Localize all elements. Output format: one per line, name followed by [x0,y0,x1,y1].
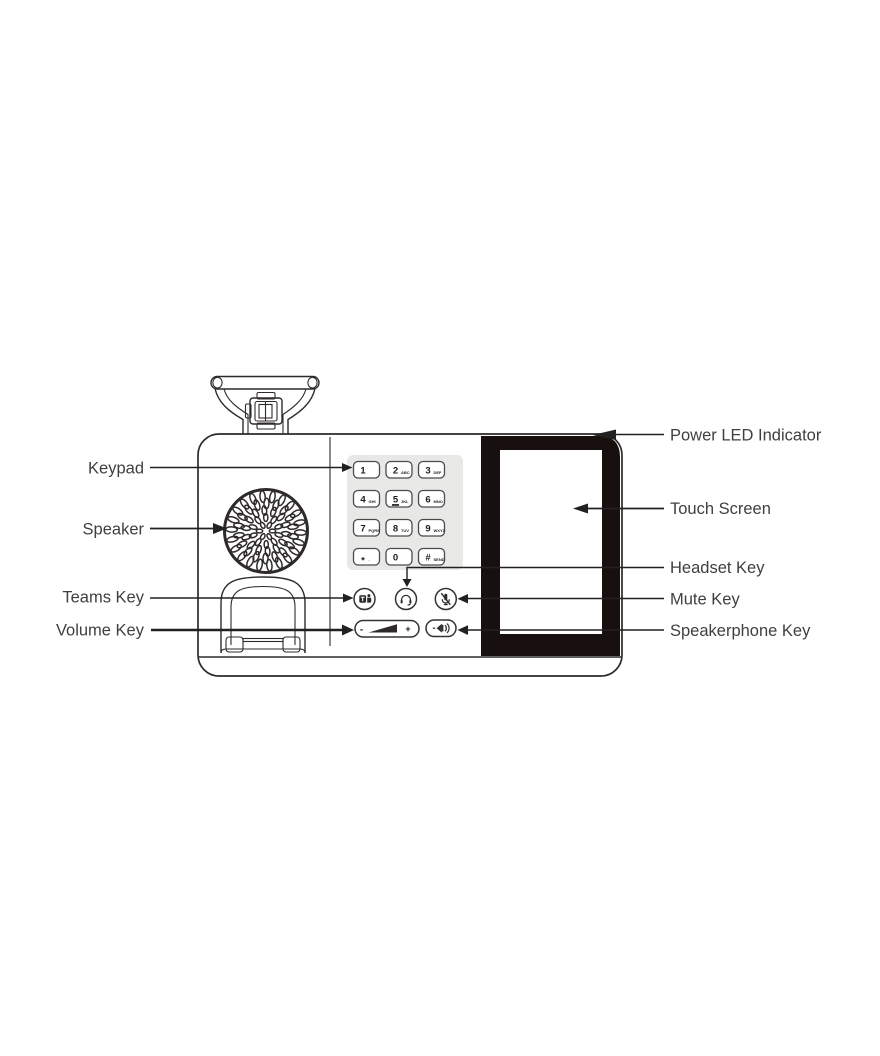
touch-screen[interactable] [481,436,620,656]
key-digit: 7 [360,523,365,534]
phone-callout-diagram: 12ABC3DEF4GHI5JKL6MNO7PQRS8TUV9WXYZ*.0#S… [0,0,880,1056]
callout-power-led-indicator: Power LED Indicator [593,427,822,445]
key-letters: ABC [401,470,410,475]
handset [211,377,319,435]
teams-key-button[interactable] [354,589,375,610]
volume-key-button[interactable]: - + [355,621,419,638]
key-letters: PQRS [369,528,381,533]
key-letters: JKL [401,499,409,504]
keypad-key-7[interactable]: 7PQRS [354,520,381,537]
mute-key-button[interactable] [435,589,456,610]
keypad-key-0[interactable]: 0 [386,549,412,566]
teams-icon [359,594,371,603]
volume-minus-label: - [360,625,363,636]
label-speaker: Speaker [83,521,145,539]
key-letters: MNO [434,499,443,504]
key-digit: 1 [360,465,366,476]
key-letters: DEF [434,470,443,475]
key-digit: 5 [393,494,399,505]
key-digit: 3 [425,465,430,476]
label-teams-key: Teams Key [62,589,144,607]
key-digit: 0 [393,552,398,563]
screen-display-area[interactable] [500,450,602,634]
key-letters: . [369,557,370,562]
label-headset-key: Headset Key [670,559,765,577]
keypad-key-4[interactable]: 4GHI [354,491,380,508]
headset-key-button[interactable] [396,589,417,610]
key-digit: 6 [425,494,430,505]
handset-hook-clip [246,393,283,430]
keypad-key-2[interactable]: 2ABC [386,462,412,479]
keypad-key-1[interactable]: 1 [354,462,380,479]
key-letters: WXYZ [434,528,446,533]
keypad-key-3[interactable]: 3DEF [419,462,445,479]
keypad-key-pound[interactable]: #SEND [419,549,445,566]
label-mute-key: Mute Key [670,591,740,609]
label-touch-screen: Touch Screen [670,500,771,518]
label-keypad: Keypad [88,460,144,478]
key-letters: SEND [434,557,445,562]
label-volume-key: Volume Key [56,622,145,640]
key-digit: 8 [393,523,398,534]
keypad-key-9[interactable]: 9WXYZ [419,520,446,537]
speakerphone-key-button[interactable] [426,620,456,637]
keypad-key-star[interactable]: *. [354,549,380,567]
keypad: 12ABC3DEF4GHI5JKL6MNO7PQRS8TUV9WXYZ*.0#S… [347,455,463,570]
keypad-key-6[interactable]: 6MNO [419,491,445,508]
key-letters: GHI [369,499,376,504]
key-digit: * [361,556,365,567]
volume-plus-label: + [405,624,410,634]
key-digit: 9 [425,523,430,534]
key-letters: TUV [401,528,409,533]
keypad-key-5[interactable]: 5JKL [386,491,412,508]
key-digit: 2 [393,465,398,476]
label-power-led-indicator: Power LED Indicator [670,427,822,445]
key-digit: 4 [360,494,366,505]
label-speakerphone-key: Speakerphone Key [670,622,811,640]
keypad-key-8[interactable]: 8TUV [386,520,412,537]
key-digit: # [425,552,431,563]
